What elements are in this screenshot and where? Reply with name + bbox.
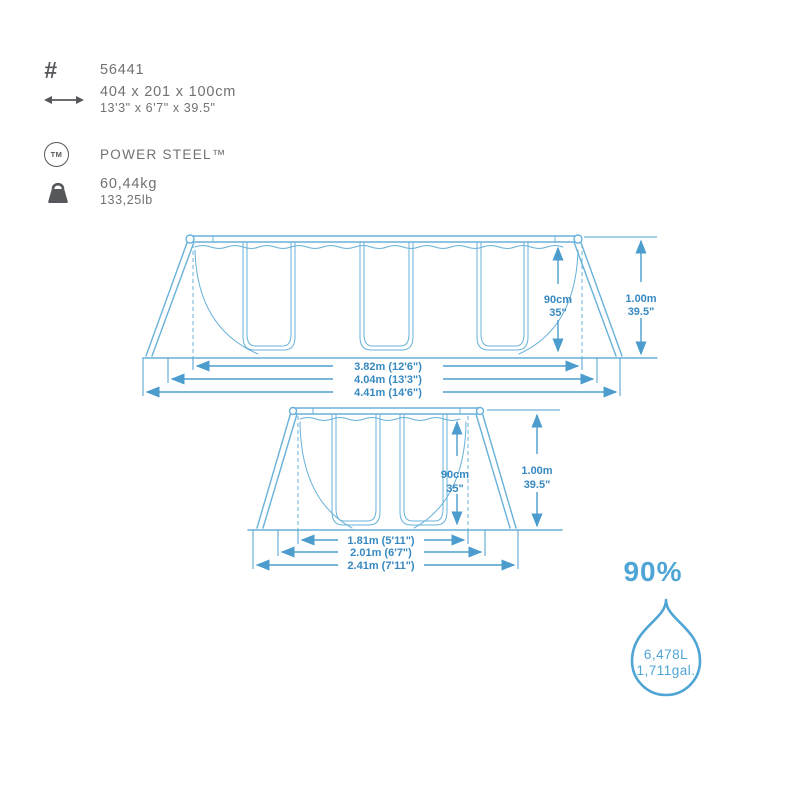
capacity-percent: 90%	[603, 556, 703, 588]
side-water-height-label: 90cm	[544, 294, 572, 306]
water-drop-icon: 6,478L 1,711gal.	[620, 594, 712, 706]
side-view-diagram: 3.82m (12'6") 4.04m (13'3") 4.41m (14'6"…	[138, 220, 662, 402]
spec-row-brand: TM POWER STEEL™	[44, 142, 227, 167]
double-arrow-icon	[44, 93, 84, 107]
side-length-pool-label: 3.82m (12'6")	[354, 361, 422, 373]
hash-icon: #	[44, 57, 57, 84]
end-dimension-heights: 90cm 35" 1.00m 39.5"	[441, 410, 560, 526]
side-water-height-in-label: 35"	[549, 307, 566, 319]
side-pool-outline	[143, 235, 657, 358]
end-width-frame-label: 2.01m (6'7")	[350, 547, 412, 559]
trademark-icon: TM	[44, 142, 69, 167]
end-total-height-in-label: 39.5"	[524, 479, 551, 491]
spec-row-weight: 60,44kg 133,25lb	[44, 176, 157, 208]
capacity-gallons: 1,711gal.	[636, 663, 695, 678]
size-imperial: 13'3" x 6'7" x 39.5"	[100, 101, 236, 116]
side-total-height-label: 1.00m	[625, 293, 656, 305]
size-metric: 404 x 201 x 100cm	[100, 84, 236, 101]
end-water-height-in-label: 35"	[446, 483, 463, 495]
side-dimension-lengths: 3.82m (12'6") 4.04m (13'3") 4.41m (14'6"…	[143, 358, 620, 399]
end-total-height-label: 1.00m	[521, 465, 552, 477]
end-view-diagram: 1.81m (5'11") 2.01m (6'7") 2.41m (7'11")…	[238, 398, 572, 582]
side-frame-bands	[243, 242, 528, 350]
weight-imperial: 133,25lb	[100, 193, 157, 208]
side-length-frame-label: 4.04m (13'3")	[354, 374, 422, 386]
weight-kettlebell-icon	[44, 179, 72, 204]
end-water-height-label: 90cm	[441, 469, 469, 481]
end-pool-outline	[248, 408, 562, 531]
spec-row-size: 404 x 201 x 100cm 13'3" x 6'7" x 39.5"	[44, 84, 236, 116]
weight-metric: 60,44kg	[100, 176, 157, 193]
end-width-total-label: 2.41m (7'11")	[347, 560, 414, 572]
spec-row-item-number: # 56441	[44, 57, 144, 84]
end-width-pool-label: 1.81m (5'11")	[347, 535, 414, 547]
end-frame-bands	[332, 414, 447, 525]
end-dimension-widths: 1.81m (5'11") 2.01m (6'7") 2.41m (7'11")	[253, 530, 518, 572]
capacity-liters: 6,478L	[644, 647, 688, 662]
brand-name: POWER STEEL™	[100, 147, 227, 163]
spec-sheet-page: # 56441 404 x 201 x 100cm 13'3" x 6'7" x…	[0, 0, 800, 800]
side-total-height-in-label: 39.5"	[628, 306, 655, 318]
item-number-value: 56441	[100, 62, 144, 79]
